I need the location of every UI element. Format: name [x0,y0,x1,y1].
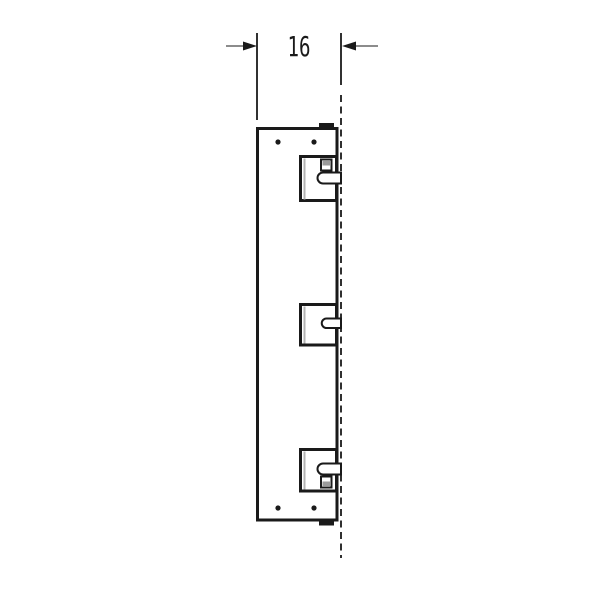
clip-bracket-top [301,157,342,201]
frame-top-tab [319,123,334,129]
bracket-middle-clip-tab [322,319,341,329]
mounting-hole-top-left [275,139,280,144]
clip-bracket-middle [301,305,342,346]
bracket-top-fastener-shade [323,161,331,166]
mounting-hole-bottom-left [275,505,280,510]
drawing-svg: 16 [0,0,600,600]
mounting-hole-top-right [311,139,316,144]
bracket-bottom-clip-tab [318,464,341,475]
bracket-bottom-fastener-shade [323,482,331,487]
dimension-label: 16 [288,30,311,63]
frame-bottom-tab [319,520,334,526]
technical-drawing: 16 [0,0,600,600]
bracket-top-clip-tab [318,173,341,184]
dimension-arrowhead-right-icon [342,42,356,51]
drawing-linework: 16 [226,30,378,558]
dimension-arrowhead-left-icon [243,42,257,51]
clip-bracket-bottom [301,450,342,492]
dimension-annotation: 16 [226,30,378,120]
mounting-hole-bottom-right [311,505,316,510]
